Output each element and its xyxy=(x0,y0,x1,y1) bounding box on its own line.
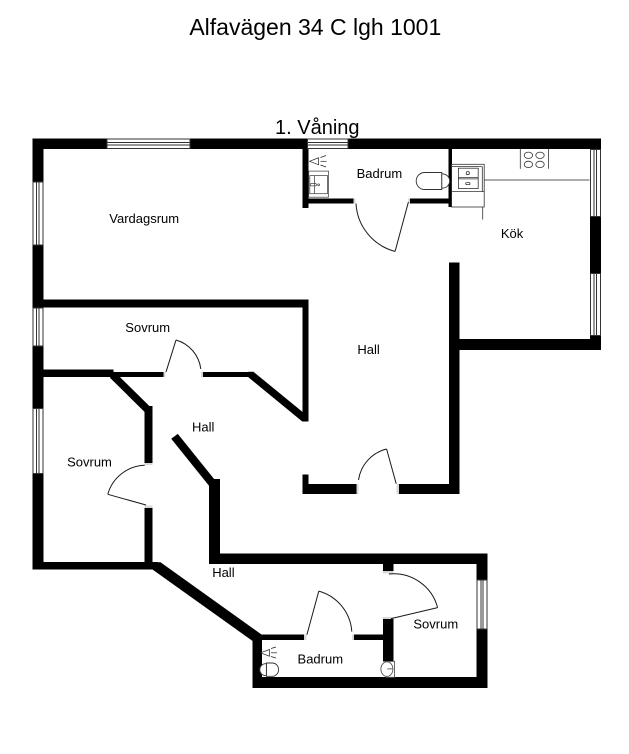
svg-text:Hall: Hall xyxy=(357,342,380,357)
svg-text:Sovrum: Sovrum xyxy=(67,455,112,470)
svg-text:Vardagsrum: Vardagsrum xyxy=(109,211,179,226)
svg-text:Sovrum: Sovrum xyxy=(413,617,458,632)
svg-text:1. Våning: 1. Våning xyxy=(275,117,360,139)
svg-text:Hall: Hall xyxy=(212,565,235,580)
svg-text:Badrum: Badrum xyxy=(298,652,344,667)
svg-text:Kök: Kök xyxy=(501,226,524,241)
svg-text:Badrum: Badrum xyxy=(357,166,403,181)
svg-text:Sovrum: Sovrum xyxy=(125,320,170,335)
svg-text:Hall: Hall xyxy=(192,419,215,434)
svg-text:Alfavägen 34 C lgh 1001: Alfavägen 34 C lgh 1001 xyxy=(189,14,441,40)
